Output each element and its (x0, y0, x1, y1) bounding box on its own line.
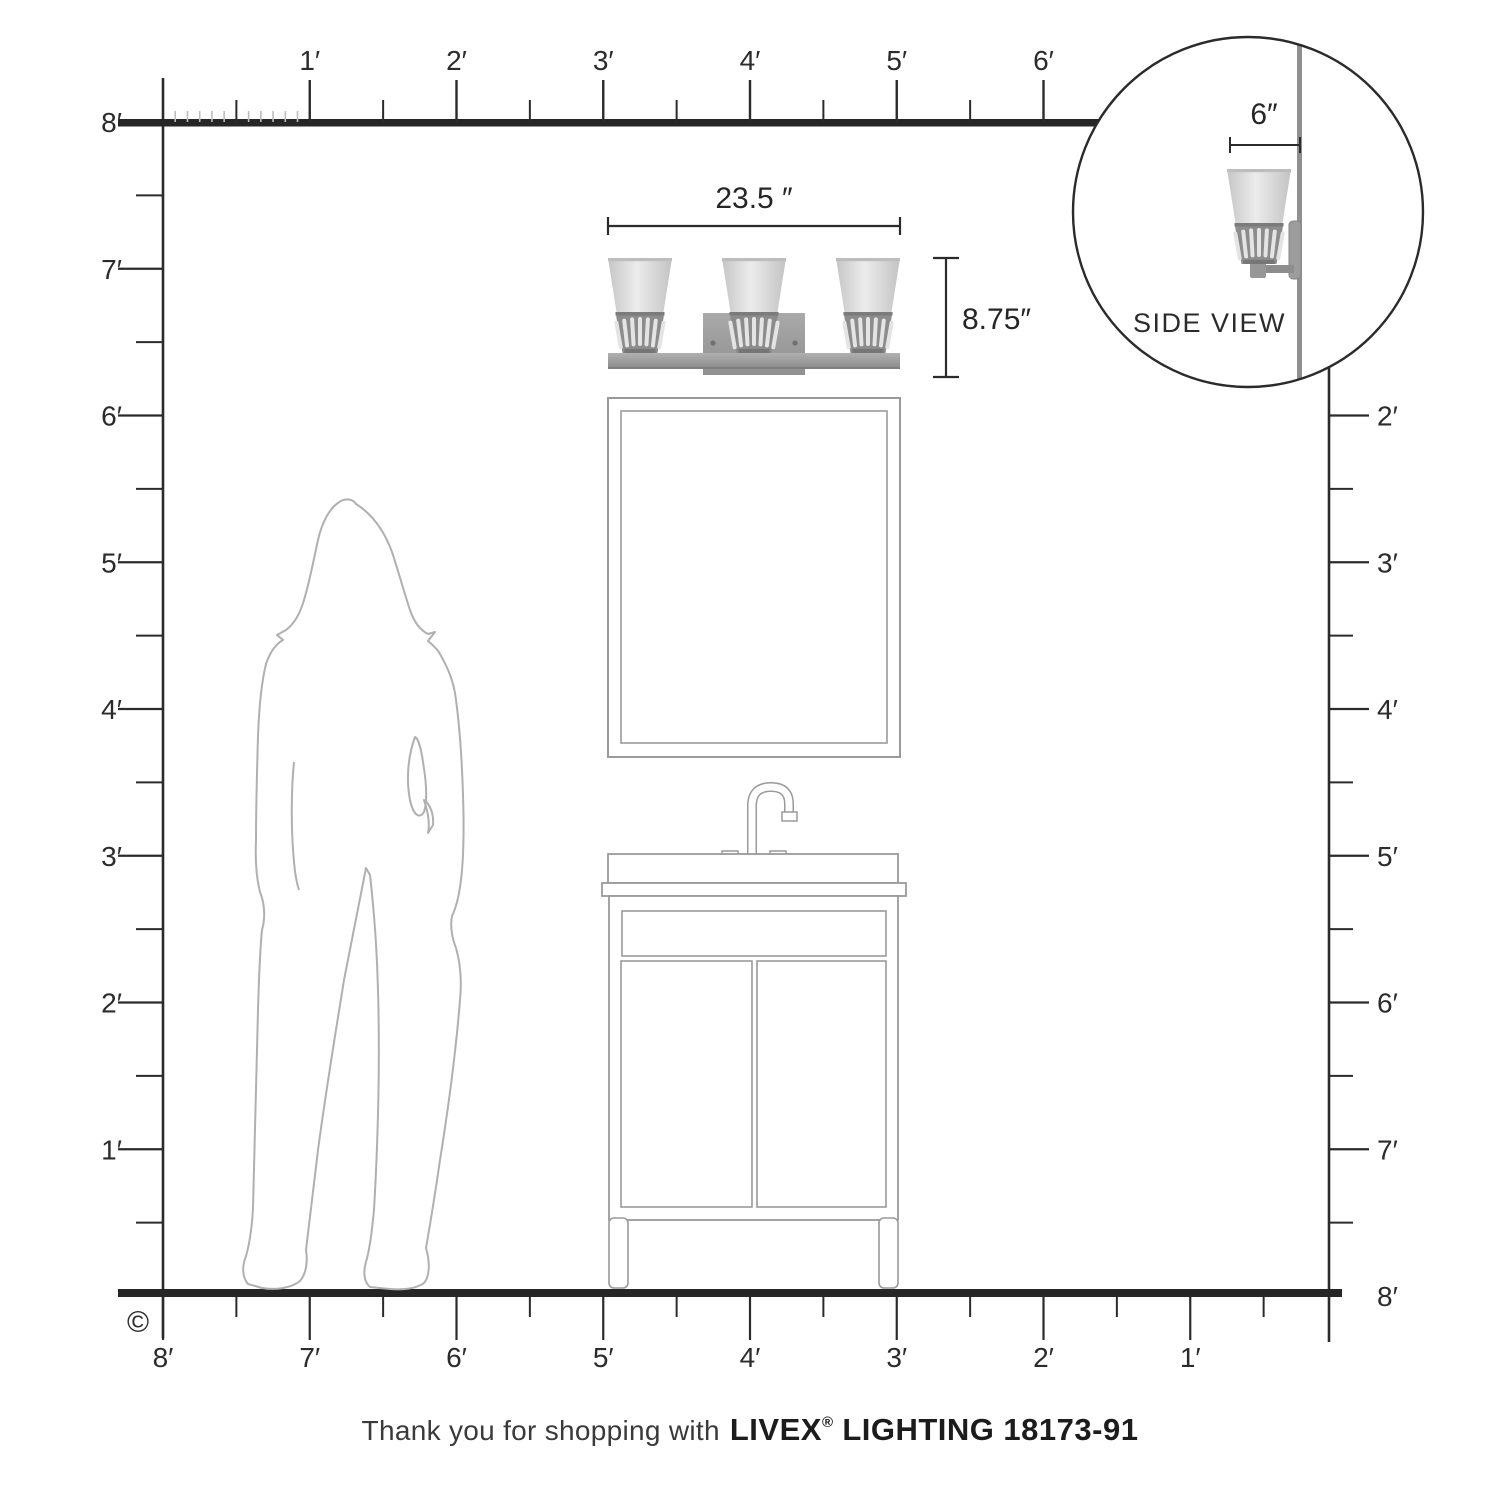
shade-left (608, 258, 672, 353)
top-label-2′: 2′ (446, 45, 467, 76)
ruler-right: 2′3′4′5′6′7′8′ (1329, 401, 1398, 1313)
left-label-4′: 4′ (101, 694, 122, 725)
depth-dim-label: 6″ (1250, 98, 1278, 131)
product-line: LIGHTING (842, 1412, 994, 1447)
copyright-symbol: © (127, 1306, 149, 1339)
wall-line (1297, 35, 1302, 390)
left-label-7′: 7′ (101, 254, 122, 285)
right-label-2′: 2′ (1377, 401, 1398, 432)
side-shade (1227, 169, 1291, 264)
fixture-bar-edge (608, 367, 900, 369)
footer-thanks-text: Thank you for shopping with (362, 1415, 720, 1446)
faucet-nozzle (782, 812, 797, 821)
registered-trademark: ® (822, 1414, 833, 1431)
top-ruler-bar (118, 119, 1100, 127)
backplate-screw-right (792, 340, 797, 345)
side-arm (1262, 265, 1294, 273)
dimension-diagram: 1′2′3′4′5′6′ 8′7′6′5′4′3′2′1′ 2′3′4′5′6′… (0, 0, 1500, 1500)
ruler-top: 1′2′3′4′5′6′ (175, 45, 1054, 122)
mirror-frame (608, 398, 900, 757)
side-view-inset: 6″ SIDE VIEW (1073, 35, 1423, 390)
backsplash (608, 854, 898, 883)
side-arm-joint (1250, 262, 1266, 278)
cabinet-leg-left (609, 1218, 628, 1288)
top-label-4′: 4′ (740, 45, 761, 76)
ruler-left: 8′7′6′5′4′3′2′1′ (101, 107, 163, 1223)
scale-figure-woman (243, 499, 463, 1289)
bottom-label-7′: 7′ (299, 1342, 320, 1373)
vanity-cabinet (602, 787, 906, 1288)
top-label-6′: 6′ (1033, 45, 1054, 76)
backplate-screw-left (710, 340, 715, 345)
side-view-label: SIDE VIEW (1133, 308, 1286, 338)
brand-name: LIVEX (730, 1412, 822, 1447)
height-dimension: 8.75″ (933, 258, 1031, 377)
woman-outline (243, 499, 463, 1289)
diagram-scene: 1′2′3′4′5′6′ 8′7′6′5′4′3′2′1′ 2′3′4′5′6′… (0, 0, 1500, 1500)
cabinet-leg-right (879, 1218, 898, 1288)
bottom-label-3′: 3′ (886, 1342, 907, 1373)
bottom-label-2′: 2′ (1033, 1342, 1054, 1373)
floor-line (118, 1289, 1342, 1297)
right-label-8′: 8′ (1377, 1281, 1398, 1312)
drawer-front (622, 911, 886, 956)
left-label-8′: 8′ (101, 107, 122, 138)
top-label-1′: 1′ (299, 45, 320, 76)
countertop (602, 883, 906, 896)
left-label-3′: 3′ (101, 841, 122, 872)
cabinet-door-right (757, 961, 886, 1207)
bottom-label-6′: 6′ (446, 1342, 467, 1373)
right-label-4′: 4′ (1377, 694, 1398, 725)
top-label-3′: 3′ (593, 45, 614, 76)
shade-right (836, 258, 900, 353)
right-label-3′: 3′ (1377, 547, 1398, 578)
left-label-6′: 6′ (101, 401, 122, 432)
bottom-label-1′: 1′ (1180, 1342, 1201, 1373)
height-dim-label: 8.75″ (962, 303, 1031, 336)
right-label-7′: 7′ (1377, 1134, 1398, 1165)
cabinet-door-left (621, 961, 752, 1207)
bottom-label-4′: 4′ (740, 1342, 761, 1373)
right-label-6′: 6′ (1377, 988, 1398, 1019)
fixture-bar (608, 353, 900, 369)
shade-center (722, 258, 786, 353)
left-label-5′: 5′ (101, 547, 122, 578)
ruler-bottom: 8′7′6′5′4′3′2′1′ (153, 1297, 1264, 1373)
left-label-1′: 1′ (101, 1134, 122, 1165)
mirror (608, 398, 900, 757)
left-label-2′: 2′ (101, 988, 122, 1019)
bottom-label-5′: 5′ (593, 1342, 614, 1373)
model-number: 18173-91 (1003, 1412, 1138, 1447)
right-label-5′: 5′ (1377, 841, 1398, 872)
footer: Thank you for shopping withLIVEX®LIGHTIN… (0, 1412, 1500, 1448)
bottom-label-8′: 8′ (153, 1342, 174, 1373)
width-dimension: 23.5 ″ (608, 182, 900, 235)
vanity-light-fixture (608, 258, 900, 375)
width-dim-label: 23.5 ″ (715, 182, 793, 215)
top-label-5′: 5′ (886, 45, 907, 76)
